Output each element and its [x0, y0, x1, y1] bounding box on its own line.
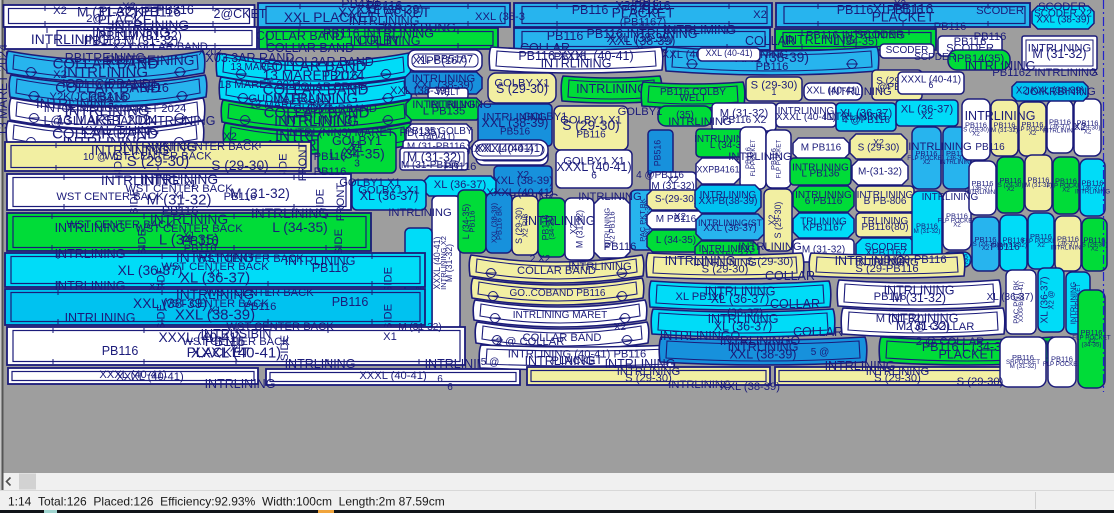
svg-text:KPB1167: KPB1167: [803, 222, 845, 233]
svg-text:5 @: 5 @: [481, 357, 500, 368]
svg-text:SCODER: SCODER: [1038, 1, 1086, 13]
svg-text:4 @PB116: 4 @PB116: [636, 170, 684, 181]
svg-text:6 PB116: 6 PB116: [805, 196, 843, 207]
svg-text:INTRLINING MARET: INTRLINING MARET: [513, 310, 607, 321]
svg-text:X2: X2: [1091, 245, 1099, 252]
svg-text:M (31-32): M (31-32): [1032, 47, 1086, 61]
svg-text:INTRLINING: INTRLINING: [525, 214, 596, 228]
svg-text:PB116: PB116: [102, 344, 139, 358]
svg-text:PB316: PB316: [156, 3, 194, 17]
svg-text:XXL (38-3: XXL (38-3: [475, 11, 525, 23]
svg-text:XXXL (40-41): XXXL (40-41): [486, 187, 554, 199]
svg-text:XXL (38-39): XXL (38-39): [1036, 14, 1090, 25]
svg-text:1:14 Total:126 Placed:126 E: 1:14 Total:126 Placed:126 Efficiency:92.…: [8, 495, 445, 509]
svg-text:XXXL (40-41): XXXL (40-41): [359, 370, 427, 382]
svg-text:INTRLINING: INTRLINING: [1042, 127, 1077, 134]
svg-text:X1: X1: [149, 282, 162, 293]
svg-text:PB116: PB116: [975, 142, 1005, 153]
svg-text:M (31-32): M (31-32): [914, 228, 941, 235]
svg-text:3: 3: [354, 158, 360, 169]
svg-text:PB116: PB116: [182, 234, 219, 248]
svg-text:PB116: PB116: [444, 161, 477, 173]
svg-text:S-(29-30): S-(29-30): [655, 194, 697, 205]
svg-text:M (31-32): M (31-32): [444, 244, 454, 282]
svg-text:2 @ COLLAR: 2 @ COLLAR: [496, 336, 565, 348]
svg-text:PB116: PB116: [244, 301, 277, 313]
svg-text:INTRLINING: INTRLINING: [525, 354, 596, 368]
svg-text:X2: X2: [953, 221, 961, 228]
svg-text:6: 6: [591, 170, 597, 181]
svg-text:M (31-32): M (31-32): [398, 322, 441, 333]
svg-text:PB416: PB416: [131, 81, 169, 95]
svg-text:XL (36-37): XL (36-37): [987, 292, 1034, 303]
svg-text:X2: X2: [53, 69, 67, 81]
svg-text:PB116: PB116: [756, 61, 789, 73]
svg-text:COLLAR BAND: COLLAR BAND: [256, 29, 344, 43]
svg-text:INTRLINING: INTRLINING: [91, 143, 169, 158]
svg-text:(36-37): (36-37): [727, 307, 763, 319]
svg-text:INTRLINING: INTRLINING: [65, 311, 136, 325]
svg-text:PLACKET: PLACKET: [187, 345, 250, 360]
svg-text:13 MARET 2024: 13 MARET 2024: [219, 79, 302, 91]
svg-text:X2: X2: [894, 0, 907, 10]
svg-text:INTRLINING: INTRLINING: [922, 192, 979, 203]
svg-text:XXL (38-39): XXL (38-39): [133, 296, 207, 311]
svg-text:KOL3AR BAND: KOL3AR BAND: [286, 55, 374, 69]
svg-text:INTRLINING: INTRLINING: [828, 86, 891, 98]
svg-text:X2: X2: [972, 130, 980, 137]
svg-text:WELT: WELT: [679, 93, 706, 104]
svg-text:INTRLINING: INTRLINING: [908, 141, 971, 153]
svg-text:COLLAR: COLLAR: [770, 297, 820, 311]
svg-text:X2: X2: [614, 322, 627, 333]
svg-text:X2: X2: [223, 131, 237, 143]
svg-text:2@CKET: 2@CKET: [214, 7, 267, 21]
svg-text:PB116: PB116: [547, 29, 584, 43]
svg-text:L (34-35): L (34-35): [272, 220, 327, 235]
svg-text:X2: X2: [921, 111, 934, 122]
svg-text:X2: X2: [1074, 122, 1087, 133]
svg-text:XXL PLACKET: XXL PLACKET: [284, 10, 377, 25]
svg-text:INTRLINING: INTRLINING: [111, 18, 189, 33]
svg-text:PB116(80): PB116(80): [861, 222, 908, 233]
svg-text:PB116: PB116: [604, 241, 637, 253]
svg-text:S (29-30): S (29-30): [625, 372, 672, 384]
svg-text:L@GLLAKSBAND: L@GLLAKSBAND: [43, 114, 146, 128]
svg-text:X2: X2: [53, 5, 67, 17]
svg-text:WST CENTER BACK: WST CENTER BACK: [206, 287, 314, 299]
svg-text:XL (36-37): XL (36-37): [360, 189, 419, 203]
svg-text:13 MARET 2024: 13 MARET 2024: [249, 99, 332, 111]
svg-text:5 @: 5 @: [811, 347, 830, 358]
svg-text:S (29-30): S (29-30): [957, 376, 1004, 388]
svg-text:X1: X1: [383, 331, 397, 343]
svg-text:S (29-30): S (29-30): [747, 256, 794, 268]
svg-text:INTRLINING: INTRLINING: [825, 359, 896, 373]
svg-text:INTRLINING: INTRLINING: [428, 99, 491, 111]
svg-text:INTRLINING: INTRLINING: [823, 111, 886, 123]
svg-text:GO..COBAND PB116: GO..COBAND PB116: [510, 288, 606, 299]
svg-text:INTRLINING: INTRLINING: [251, 206, 329, 221]
svg-text:WST CENTER BACK: WST CENTER BACK: [226, 321, 334, 333]
svg-text:SCPDER: SCPDER: [914, 52, 956, 63]
svg-text:PLACKET: PLACKET: [99, 4, 162, 19]
svg-text:2 X2: 2 X2: [530, 254, 551, 265]
svg-text:1: 1: [772, 87, 777, 97]
svg-text:2 @ COLLAR: 2 @ COLLAR: [906, 321, 975, 333]
svg-text:2@: 2@: [86, 13, 104, 25]
svg-text:WST CENTER BACK: WST CENTER BACK: [196, 253, 304, 265]
svg-text:INTRLINING: INTRLINING: [576, 82, 647, 96]
svg-text:RPITREINING: RPITREINING: [106, 53, 195, 68]
svg-text:WST CENTER BACK: WST CENTER BACK: [66, 219, 174, 231]
svg-text:JOIKRBINING: JOIKRBINING: [1024, 86, 1095, 98]
svg-text:INTRLINING: INTRLINING: [31, 32, 109, 47]
svg-text:13 MARET 2024: 13 MARET 2024: [0, 44, 10, 136]
svg-text:INTRLINING: INTRLINING: [665, 254, 736, 268]
svg-text:COLLAR: COLLAR: [793, 325, 843, 339]
svg-text:PB(135): PB(135): [399, 127, 440, 139]
svg-text:X: X: [1092, 67, 1099, 78]
svg-text:XXXL (40-41): XXXL (40-41): [116, 371, 184, 383]
svg-text:PB116: PB116: [572, 3, 609, 17]
svg-text:INTRLINING: INTRLINING: [568, 261, 631, 273]
svg-text:INTRLINING: INTRLINING: [285, 357, 356, 371]
svg-text:S (29-30): S (29-30): [496, 82, 548, 96]
svg-text:PB516: PB516: [653, 140, 663, 167]
svg-text:INTRLINING: INTRLINING: [1050, 244, 1085, 251]
svg-text:B PB-806: B PB-806: [864, 196, 907, 207]
svg-text:X2: X2: [1062, 186, 1070, 193]
svg-text:6: 6: [447, 382, 453, 393]
svg-text:X2: X2: [982, 245, 990, 252]
svg-text:PB116: PB116: [874, 291, 907, 303]
svg-text:PB116: PB116: [837, 3, 874, 17]
svg-text:S (29-30): S (29-30): [858, 142, 900, 153]
svg-text:X2 @: X2 @: [1047, 291, 1056, 310]
svg-text:PB116: PB116: [332, 295, 369, 309]
svg-text:INTRLINING: INTRLINING: [578, 191, 641, 203]
svg-text:PB116: PB116: [322, 69, 359, 83]
svg-text:XL (36-37): XL (36-37): [180, 269, 250, 286]
svg-text:XXL (38-39): XXL (38-39): [493, 175, 553, 187]
svg-text:X2: X2: [1029, 130, 1037, 137]
svg-text:M PB116: M PB116: [801, 142, 842, 153]
svg-text:GOLBY1 X1: GOLBY1 X1: [339, 177, 401, 189]
svg-text:INTRLINING: INTRLINING: [605, 357, 676, 371]
svg-text:X1: X1: [343, 146, 357, 158]
svg-text:X2: X2: [923, 159, 931, 166]
svg-text:INTRLINING: INTRLINING: [728, 151, 791, 163]
svg-text:L (34-35): L (34-35): [656, 235, 696, 246]
svg-text:XXL (40-41): XXL (40-41): [705, 48, 752, 58]
svg-text:PB116: PB116: [576, 130, 606, 141]
svg-text:FRONT: FRONT: [297, 143, 309, 182]
svg-text:(34-35): (34-35): [1082, 342, 1102, 349]
svg-text:INTRLINING: INTRLINING: [101, 173, 179, 188]
svg-text:X2: X2: [1007, 186, 1015, 193]
svg-text:INTRL(NIN3) MARET: INTRL(NIN3) MARET: [286, 127, 394, 139]
svg-text:XXL (38-39): XXL (38-39): [390, 85, 450, 97]
svg-text:INTRLINING: INTRLINING: [668, 379, 731, 391]
svg-text:INTRLINING: INTRLINING: [668, 116, 731, 128]
svg-text:PLACKET: PLACKET: [939, 347, 996, 361]
svg-text:INTRLINING: INTRLINING: [55, 247, 126, 261]
svg-text:XXXL (40-41): XXXL (40-41): [158, 330, 241, 345]
svg-text:XXXL (40-41): XXXL (40-41): [466, 143, 534, 155]
svg-text:COLLAR: COLLAR: [765, 269, 815, 283]
svg-text:PB116: PB116: [554, 51, 587, 63]
svg-text:PB516: PB516: [500, 126, 530, 137]
svg-text:INTRLINING: INTRLINING: [55, 279, 126, 293]
svg-text:X2: X2: [753, 9, 767, 21]
svg-text:XXL (36-37): XXL (36-37): [703, 223, 757, 234]
svg-text:INTRLINING: INTRLINING: [350, 34, 421, 48]
svg-text:X2: X2: [1037, 242, 1045, 249]
svg-text:INTRLINING: INTRLINING: [1075, 188, 1110, 195]
svg-text:X1PB(167): X1PB(167): [413, 55, 468, 67]
svg-text:PB116: PB116: [468, 211, 477, 233]
svg-text:XL (36-37): XL (36-37): [118, 263, 183, 278]
svg-text:FLP POCKET: FLP POCKET: [1043, 361, 1082, 368]
svg-text:S (29-30): S (29-30): [773, 202, 783, 239]
svg-text:PB116: PB116: [314, 151, 347, 163]
svg-text:INTRLBUNG: INTRLBUNG: [384, 21, 456, 35]
svg-text:6: 6: [929, 80, 934, 90]
svg-text:X1: X1: [184, 179, 197, 190]
svg-text:PB116 BK: PB116 BK: [495, 206, 504, 240]
svg-text:INTRL(NIN3): INTRL(NIN3): [284, 113, 357, 127]
svg-text:INTRLINING: INTRLINING: [388, 207, 451, 219]
svg-text:X2 PB116: X2 PB116: [608, 211, 617, 244]
svg-text:SIDE: SIDE: [333, 229, 345, 255]
svg-text:XL PB116: XL PB116: [675, 291, 724, 303]
svg-text:SCODER: SCODER: [976, 5, 1024, 17]
svg-text:S (29-30): S (29-30): [211, 158, 269, 173]
svg-text:XXPB4161: XXPB4161: [696, 165, 739, 175]
svg-text:XXPB(38-39): XXPB(38-39): [699, 196, 758, 207]
svg-text:INTRLINING: INTRLINING: [205, 377, 276, 391]
svg-text:M (31-32): M (31-32): [230, 186, 290, 201]
svg-text:INTRLINING: INTRLINING: [965, 59, 1036, 73]
svg-text:PB16: PB16: [631, 0, 658, 10]
svg-text:L PB136: L PB136: [802, 168, 840, 179]
svg-text:INTRLINING: INTRLINING: [145, 114, 216, 128]
svg-text:GOLBY1: GOLBY1: [618, 106, 663, 118]
svg-text:INTRLINING: INTRLINING: [738, 241, 801, 253]
svg-text:INTRLINING: INTRLINING: [36, 96, 114, 111]
svg-text:6: 6: [437, 374, 443, 385]
svg-text:SIDE: SIDE: [136, 229, 148, 255]
svg-text:S (29-PB116: S (29-PB116: [883, 254, 946, 266]
svg-text:XXL (38-39): XXL (38-39): [730, 347, 797, 361]
svg-text:INTRLINING: INTRLINING: [785, 33, 856, 47]
svg-text:X2: X2: [674, 212, 687, 223]
svg-text:INTRLININGO: INTRLININGO: [660, 329, 741, 343]
svg-text:SCODER: SCODER: [856, 29, 904, 41]
svg-text:PB116: PB116: [312, 261, 349, 275]
svg-text:INTRLIMING: INTRLIMING: [664, 23, 736, 37]
svg-text:PB116: PB116: [934, 21, 967, 33]
svg-text:M (31-32): M (31-32): [1010, 363, 1037, 370]
svg-text:PB116: PB116: [974, 31, 1007, 43]
svg-text:INTRLINING: INTRLINING: [965, 109, 1036, 123]
svg-text:PB116: PB116: [990, 242, 1020, 253]
svg-text:M-(31-32): M-(31-32): [858, 166, 902, 177]
svg-text:WST CENTER BACK: WST CENTER BACK: [56, 191, 164, 203]
svg-text:GOLBY1: GOLBY1: [523, 111, 568, 123]
svg-text:2 @ COLLAR: 2 @ COLLAR: [916, 336, 985, 348]
svg-text:X03.3AR RAND: X03.3AR RAND: [206, 51, 295, 65]
svg-text:PB116: PB116: [162, 204, 199, 218]
svg-text:S (29-30): S (29-30): [874, 372, 921, 384]
